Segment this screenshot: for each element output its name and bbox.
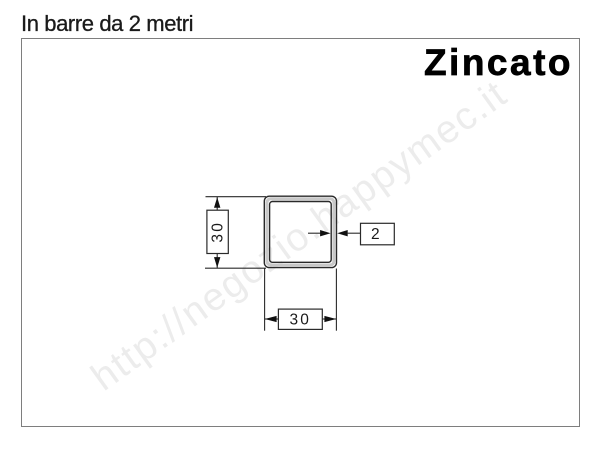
svg-text:30: 30 <box>289 312 311 329</box>
svg-text:30: 30 <box>209 221 226 243</box>
svg-text:2: 2 <box>371 226 380 243</box>
